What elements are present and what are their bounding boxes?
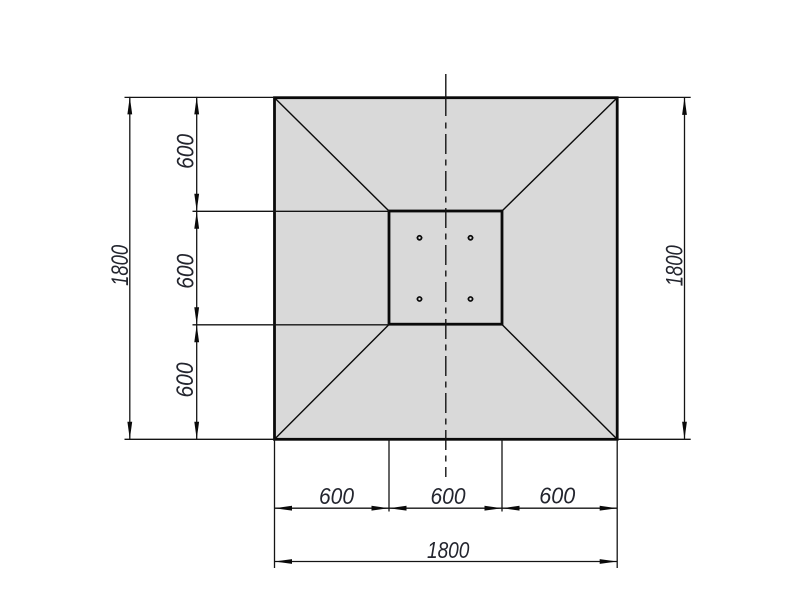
svg-text:600: 600 bbox=[173, 133, 200, 169]
svg-text:600: 600 bbox=[431, 483, 466, 509]
svg-text:1800: 1800 bbox=[427, 537, 470, 563]
svg-text:1800: 1800 bbox=[661, 245, 688, 287]
svg-text:600: 600 bbox=[319, 483, 354, 509]
svg-text:600: 600 bbox=[172, 362, 199, 398]
svg-text:1800: 1800 bbox=[107, 244, 134, 286]
svg-text:600: 600 bbox=[539, 483, 575, 509]
svg-text:600: 600 bbox=[173, 253, 200, 289]
